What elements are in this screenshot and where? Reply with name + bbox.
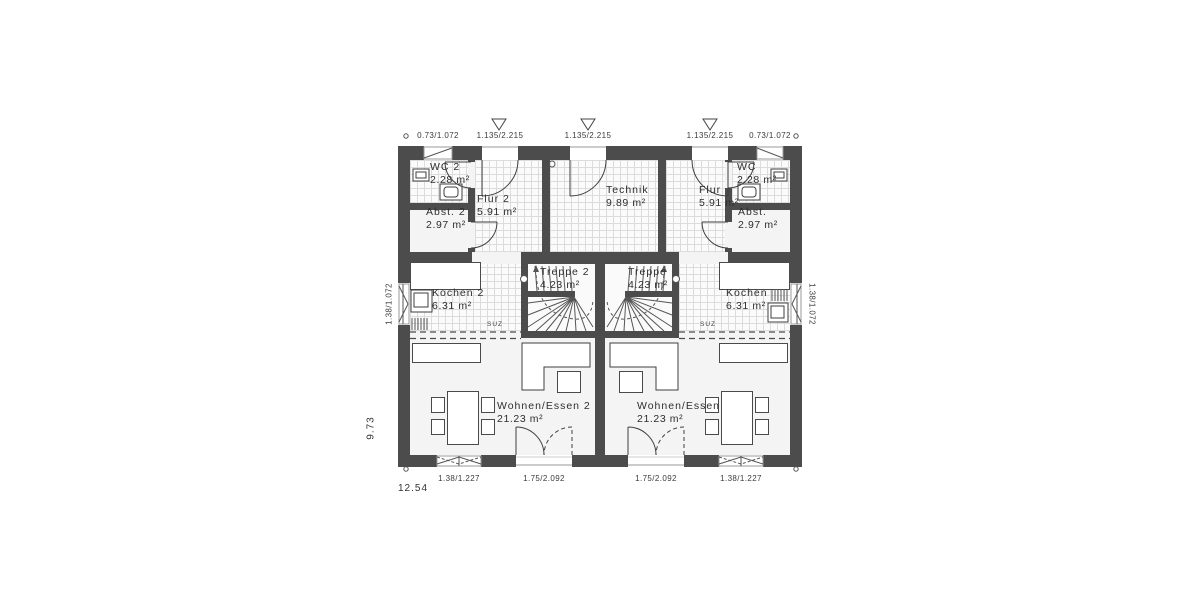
dining-table (447, 391, 479, 445)
chair (481, 419, 495, 435)
wall-segment (521, 264, 528, 331)
wall-segment (672, 264, 679, 331)
dim-top: 1.135/2.215 (687, 131, 734, 140)
dining-table (721, 391, 753, 445)
kitchen-counter (410, 262, 481, 290)
wall-segment (606, 146, 692, 160)
wall-segment (398, 325, 410, 467)
room-label-abst2: Abst. 2 2.97 m² (426, 206, 466, 232)
room-area: 4.23 m² (540, 279, 590, 292)
room-area: 6.31 m² (726, 300, 768, 313)
room-area: 9.89 m² (606, 197, 649, 210)
room-name: Wohnen/Essen (637, 400, 720, 413)
room-name: Abst. 2 (426, 206, 466, 219)
suz-label: SUZ (700, 321, 716, 328)
room-name: Treppe 2 (540, 266, 590, 279)
suz-label: SUZ (487, 321, 503, 328)
room-name: WC 2 (430, 161, 470, 174)
room-name: Treppe (628, 266, 668, 279)
chair (755, 419, 769, 435)
wall-segment (468, 188, 475, 222)
room-label-wc: WC 2.28 m² (737, 161, 777, 187)
room-label-treppe: Treppe 4.23 m² (628, 266, 668, 292)
room-area: 21.23 m² (497, 413, 591, 426)
wall-segment (790, 325, 802, 467)
overall-width: 12.54 (398, 483, 428, 494)
sideboard (412, 343, 481, 363)
entrance-marker-icon (492, 119, 717, 130)
wall-segment (572, 455, 628, 467)
floorplan-canvas: WC 2 2.28 m² Flur 2 5.91 m² Abst. 2 2.97… (0, 0, 1200, 600)
room-label-wohnen: Wohnen/Essen 21.23 m² (637, 400, 720, 426)
dim-bottom: 1.38/1.227 (720, 474, 762, 483)
wall-segment (452, 146, 482, 160)
dim-right-window: 1.38/1.072 (808, 283, 817, 325)
wall-segment (728, 146, 757, 160)
room-label-treppe2: Treppe 2 4.23 m² (540, 266, 590, 292)
chair (481, 397, 495, 413)
room-label-abst: Abst. 2.97 m² (738, 206, 778, 232)
wall-segment (658, 160, 666, 252)
room-area: 2.28 m² (737, 174, 777, 187)
room-area: 2.97 m² (426, 219, 466, 232)
room-area: 5.91 m² (699, 197, 739, 210)
room-area: 2.97 m² (738, 219, 778, 232)
room-area: 21.23 m² (637, 413, 720, 426)
party-wall (595, 252, 605, 455)
room-name: Abst. (738, 206, 778, 219)
room-name: WC (737, 161, 777, 174)
room-label-wc2: WC 2 2.28 m² (430, 161, 470, 187)
dim-bottom: 1.75/2.092 (635, 474, 677, 483)
dim-top: 0.73/1.072 (749, 131, 791, 140)
chair (431, 419, 445, 435)
dim-bottom: 1.75/2.092 (523, 474, 565, 483)
room-area: 6.31 m² (432, 300, 484, 313)
dim-top: 0.73/1.072 (417, 131, 459, 140)
kitchen-counter (719, 262, 790, 290)
room-name: Kochen (726, 287, 768, 300)
sideboard (719, 343, 788, 363)
wall-segment (481, 455, 516, 467)
wall-segment (605, 331, 679, 338)
room-label-flur2: Flur 2 5.91 m² (477, 193, 517, 219)
coffee-table (557, 371, 581, 393)
room-name: Kochen 2 (432, 287, 484, 300)
chair (755, 397, 769, 413)
room-name: Flur (699, 184, 739, 197)
wall-segment (521, 331, 595, 338)
room-area: 4.23 m² (628, 279, 668, 292)
wall-segment (725, 160, 732, 162)
wall-segment (518, 146, 570, 160)
coffee-table (619, 371, 643, 393)
room-label-technik: Technik 9.89 m² (606, 184, 649, 210)
room-label-kochen2: Kochen 2 6.31 m² (432, 287, 484, 313)
room-name: Flur 2 (477, 193, 517, 206)
wall-segment (684, 455, 719, 467)
room-name: Wohnen/Essen 2 (497, 400, 591, 413)
chair (431, 397, 445, 413)
wall-segment (542, 160, 550, 252)
dim-top: 1.135/2.215 (565, 131, 612, 140)
room-label-wohnen2: Wohnen/Essen 2 21.23 m² (497, 400, 591, 426)
room-area: 5.91 m² (477, 206, 517, 219)
overall-depth: 9.73 (366, 416, 377, 439)
room-name: Technik (606, 184, 649, 197)
dim-left-window: 1.38/1.072 (385, 283, 394, 325)
room-area: 2.28 m² (430, 174, 470, 187)
dim-top: 1.135/2.215 (477, 131, 524, 140)
room-label-kochen: Kochen 6.31 m² (726, 287, 768, 313)
dim-bottom: 1.38/1.227 (438, 474, 480, 483)
room-label-flur: Flur 5.91 m² (699, 184, 739, 210)
